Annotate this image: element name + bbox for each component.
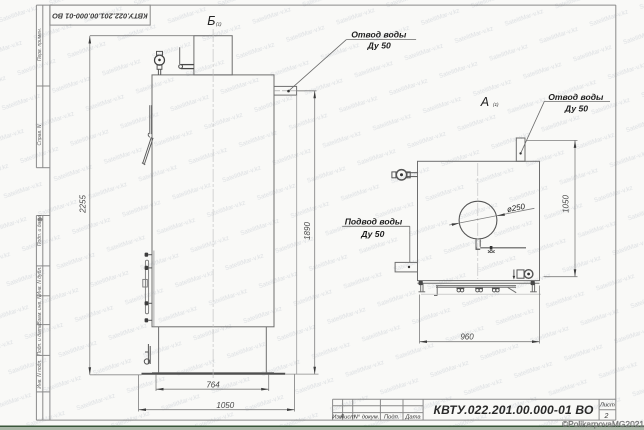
svg-text:©PolikarpovaMG2021: ©PolikarpovaMG2021: [562, 419, 644, 429]
svg-text:Ду 50: Ду 50: [367, 40, 391, 50]
svg-text:(1): (1): [216, 21, 222, 26]
svg-text:960: 960: [460, 333, 474, 342]
svg-text:Ду 50: Ду 50: [360, 229, 384, 239]
svg-text:Справ. N: Справ. N: [37, 124, 43, 145]
svg-text:Ду 50: Ду 50: [564, 103, 588, 113]
svg-text:Инв. N дубл.: Инв. N дубл.: [37, 267, 43, 296]
svg-text:Дата: Дата: [404, 415, 421, 421]
svg-text:Подп. и дата: Подп. и дата: [37, 324, 43, 356]
svg-text:Б: Б: [207, 14, 215, 28]
svg-text:1890: 1890: [303, 222, 312, 240]
svg-text:2255: 2255: [78, 195, 87, 214]
svg-text:1050: 1050: [561, 195, 570, 213]
svg-text:Инв. N подл.: Инв. N подл.: [37, 359, 43, 388]
svg-text:Лист: Лист: [599, 403, 615, 409]
svg-text:Отвод воды: Отвод воды: [351, 29, 407, 39]
svg-text:Отвод воды: Отвод воды: [548, 92, 604, 102]
svg-text:N° докум.: N° докум.: [354, 415, 380, 421]
svg-text:Подп.: Подп.: [384, 415, 399, 421]
svg-text:А: А: [480, 95, 489, 109]
svg-text:КВТУ.022.201.00.000-01 ВО: КВТУ.022.201.00.000-01 ВО: [52, 11, 148, 20]
svg-text:764: 764: [206, 380, 220, 389]
svg-text:(1): (1): [493, 102, 499, 107]
svg-text:КВТУ.022.201.00.000-01 ВО: КВТУ.022.201.00.000-01 ВО: [434, 403, 594, 417]
svg-text:Подвод воды: Подвод воды: [345, 217, 403, 227]
svg-text:1050: 1050: [216, 401, 234, 410]
svg-text:Перв. примен.: Перв. примен.: [37, 28, 43, 61]
svg-text:Взам. инв. N: Взам. инв. N: [37, 295, 43, 325]
